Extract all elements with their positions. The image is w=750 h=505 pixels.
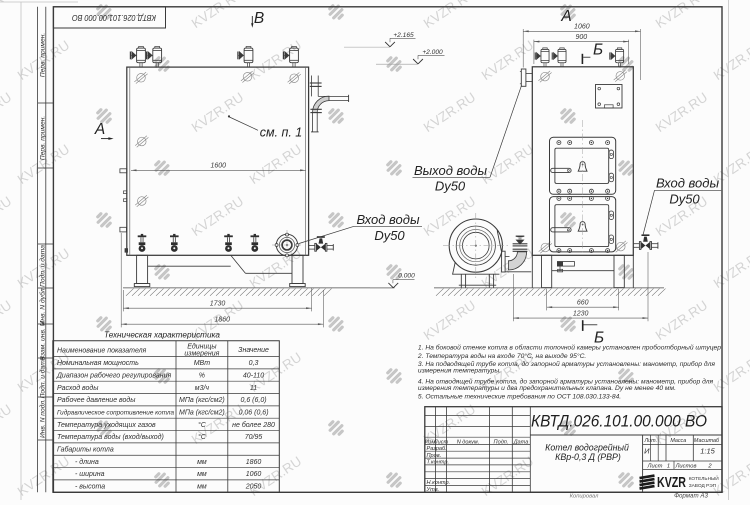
svg-text:Значение: Значение (238, 347, 269, 354)
svg-text:Формат А3: Формат А3 (674, 493, 708, 500)
svg-text:2050: 2050 (245, 484, 262, 491)
svg-text:Габариты котла: Габариты котла (57, 446, 114, 454)
svg-text:- длина: - длина (75, 458, 99, 466)
svg-text:В: В (254, 10, 264, 27)
svg-text:мм: мм (197, 484, 207, 491)
svg-text:Н.контр.: Н.контр. (427, 480, 451, 486)
svg-text:Лит.: Лит. (643, 438, 657, 444)
svg-text:1230: 1230 (573, 310, 589, 317)
svg-text:Копировал: Копировал (570, 494, 600, 500)
svg-text:40-110: 40-110 (243, 373, 264, 380)
svg-text:Подп. и дата: Подп. и дата (38, 356, 46, 398)
svg-text:°С: °С (198, 421, 207, 429)
svg-text:2. Температура воды на входе: 2. Температура воды на входе 70°С, на вы… (417, 352, 587, 360)
svg-text:Температура воды (вход/выход): Температура воды (вход/выход) (57, 433, 164, 441)
svg-text:900: 900 (575, 34, 587, 41)
svg-text:Инв. N подл.: Инв. N подл. (38, 399, 46, 438)
svg-text:Номинальная мощность: Номинальная мощность (57, 360, 139, 367)
svg-text:Dy50: Dy50 (669, 192, 700, 207)
svg-text:Перв. примен.: Перв. примен. (39, 116, 46, 161)
svg-text:1060: 1060 (574, 24, 590, 31)
svg-text:Подп. и дата: Подп. и дата (38, 245, 46, 287)
svg-text:МПа (кгс/см2): МПа (кгс/см2) (179, 397, 225, 404)
svg-text:1: 1 (667, 463, 670, 469)
svg-text:И: И (644, 446, 650, 455)
svg-text:4. На отводящей трубе котла,: 4. На отводящей трубе котла, до запорной… (418, 377, 714, 385)
svg-text:не более 280: не более 280 (232, 421, 275, 429)
svg-text:Инв. N дубл.: Инв. N дубл. (38, 287, 46, 326)
svg-text:МПа (кгс/см2): МПа (кгс/см2) (179, 410, 225, 417)
svg-text:Выход воды: Выход воды (414, 163, 488, 178)
svg-text:Гидравлическое сопротивление к: Гидравлическое сопротивление котла (57, 409, 174, 417)
svg-text:ЗАВОД РЭП: ЗАВОД РЭП (689, 483, 717, 489)
svg-text:Единицы: Единицы (187, 342, 217, 350)
svg-text:Наименование показателя: Наименование показателя (57, 347, 147, 354)
svg-text:1860: 1860 (246, 459, 262, 466)
svg-text:1860: 1860 (215, 317, 231, 324)
svg-text:0,3: 0,3 (249, 360, 259, 367)
svg-text:660: 660 (577, 300, 589, 307)
svg-text:м3/ч: м3/ч (195, 385, 210, 392)
svg-text:KVZR: KVZR (657, 475, 686, 491)
svg-text:измерения температуры.: измерения температуры. (418, 368, 501, 375)
svg-text:70/95: 70/95 (245, 434, 263, 441)
svg-text:N докум.: N докум. (457, 439, 480, 445)
svg-text:МВт: МВт (194, 360, 211, 367)
svg-text:Взам. инв. N: Взам. инв. N (39, 321, 46, 360)
svg-text:Б: Б (593, 42, 603, 59)
svg-text:Масштаб: Масштаб (694, 438, 720, 444)
svg-text:Температура уходящих газов: Температура уходящих газов (57, 421, 156, 429)
svg-text:Диапазон рабочего регулировани: Диапазон рабочего регулирования (56, 372, 172, 380)
svg-text:Разраб.: Разраб. (427, 446, 447, 452)
svg-text:А: А (94, 121, 105, 138)
svg-text:Масса: Масса (670, 438, 686, 444)
svg-text:0,06 (0,6): 0,06 (0,6) (239, 410, 269, 417)
svg-text:Пров.: Пров. (427, 453, 442, 459)
svg-text:А: А (560, 8, 571, 25)
svg-text:Dy50: Dy50 (374, 228, 405, 243)
svg-text:%: % (199, 373, 205, 380)
svg-text:измерения температуры и два пр: измерения температуры и два предохраните… (418, 384, 676, 392)
svg-text:Dy50: Dy50 (435, 179, 466, 194)
svg-text:- высота: - высота (75, 484, 105, 491)
svg-text:Вход воды: Вход воды (656, 176, 720, 191)
svg-text:- ширина: - ширина (75, 471, 105, 478)
svg-text:Подп.: Подп. (494, 439, 509, 445)
svg-text:Лист: Лист (433, 439, 449, 445)
svg-text:КВТД.026.101.00.000 ВО: КВТД.026.101.00.000 ВО (71, 13, 156, 22)
svg-text:1060: 1060 (246, 471, 262, 478)
svg-text:5. Остальные технические треб: 5. Остальные технические требования по О… (418, 393, 621, 401)
svg-text:Лист: Лист (647, 463, 663, 469)
svg-text:1:15: 1:15 (700, 447, 715, 456)
svg-text:11: 11 (250, 385, 257, 392)
svg-text:Т.контр.: Т.контр. (427, 460, 450, 466)
svg-text:Утв.: Утв. (426, 487, 440, 493)
svg-text:мм: мм (197, 471, 207, 478)
svg-text:Рабочее давление воды: Рабочее давление воды (57, 396, 136, 404)
svg-text:КВТД.026.101.00.000 ВО: КВТД.026.101.00.000 ВО (531, 412, 707, 430)
svg-text:1730: 1730 (210, 301, 226, 308)
svg-text:1. На боковой стенке котла в: 1. На боковой стенке котла в области топ… (418, 344, 721, 352)
svg-text:Техническая характеристика: Техническая характеристика (104, 331, 220, 340)
svg-text:измерения: измерения (184, 351, 219, 358)
svg-text:Расход воды: Расход воды (57, 384, 99, 392)
svg-text:см. п. 1: см. п. 1 (260, 125, 303, 139)
svg-text:Перв. примен.: Перв. примен. (39, 33, 46, 78)
svg-text:0,6 (6,0): 0,6 (6,0) (241, 397, 267, 404)
svg-text:3. На подводящей трубе котла,: 3. На подводящей трубе котла, до запорно… (418, 360, 715, 368)
svg-text:КВр-0,3 Д (РВР): КВр-0,3 Д (РВР) (555, 452, 621, 462)
svg-text:Вход воды: Вход воды (356, 212, 420, 227)
svg-text:0.000: 0.000 (398, 272, 415, 279)
svg-text:°С: °С (198, 433, 207, 441)
svg-text:Листов: Листов (674, 463, 696, 469)
svg-text:Дата: Дата (513, 439, 529, 445)
svg-text:1600: 1600 (211, 163, 227, 170)
svg-text:мм: мм (197, 459, 207, 466)
